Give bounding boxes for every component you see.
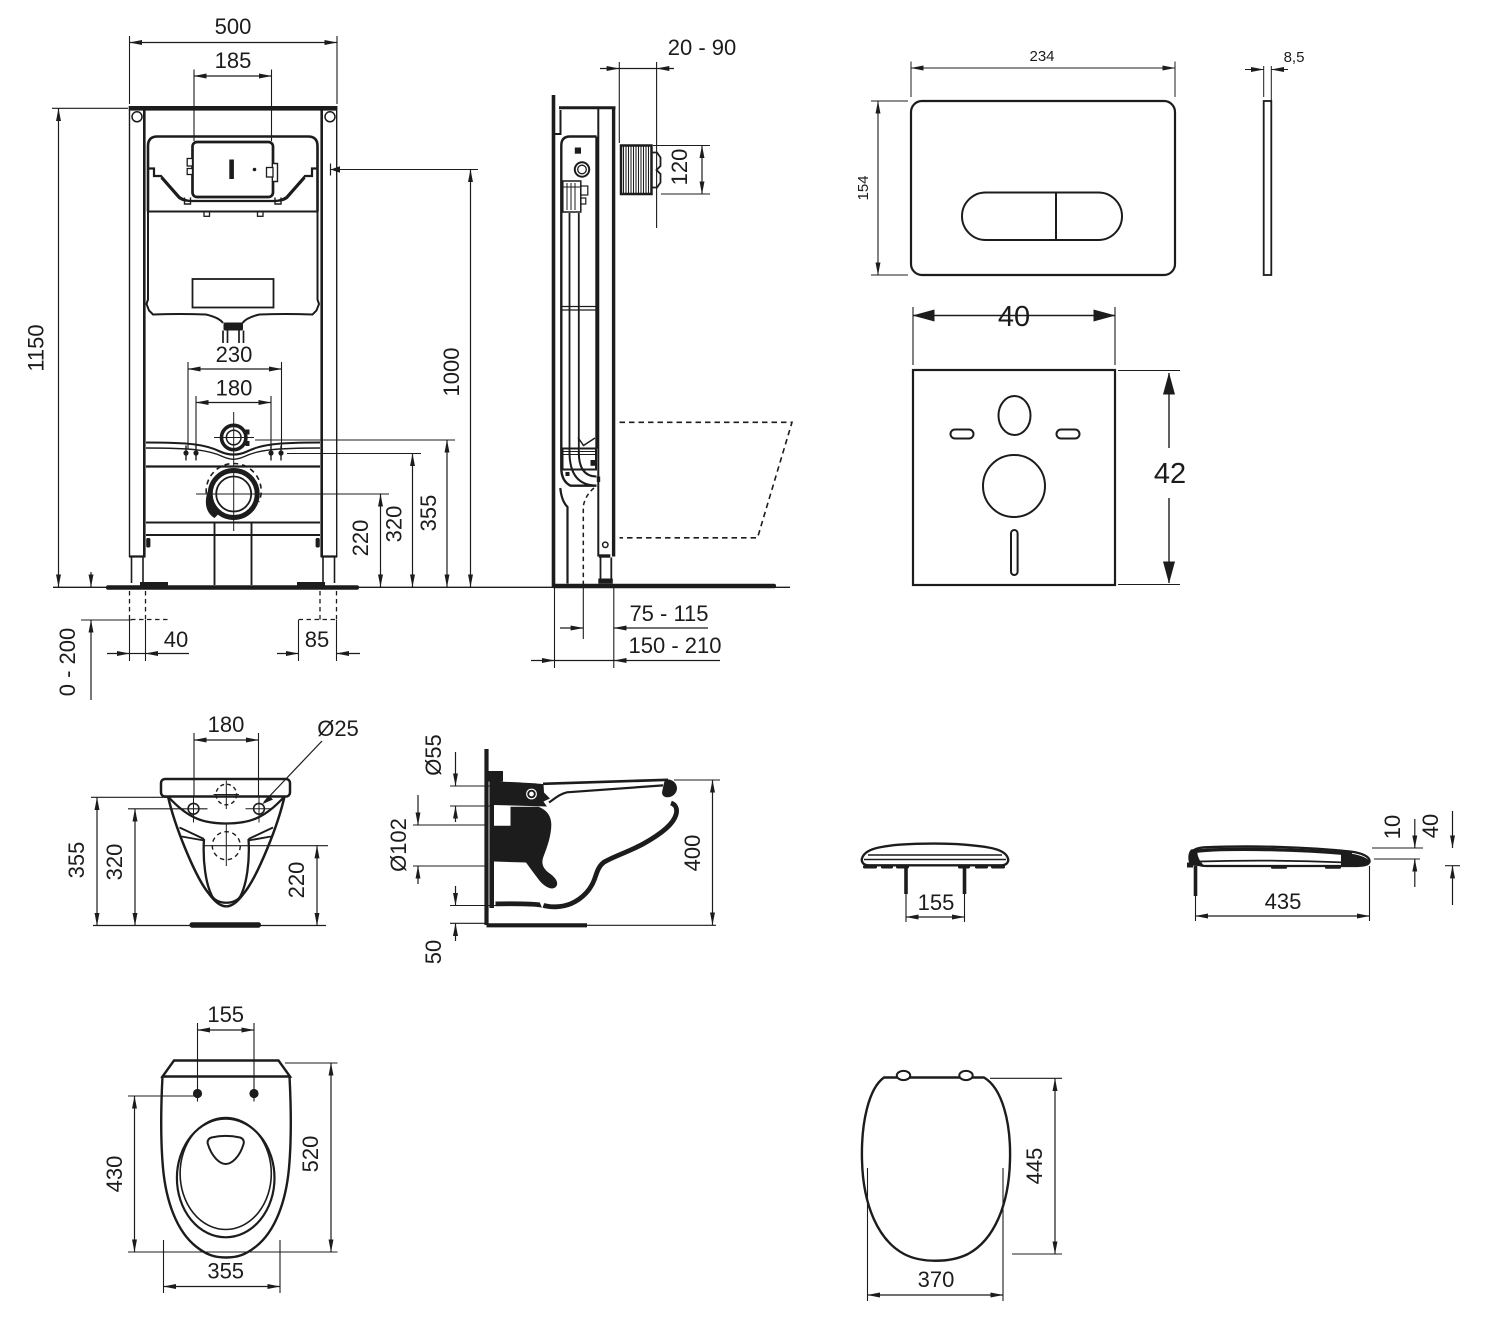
svg-text:320: 320 <box>102 844 127 881</box>
svg-text:355: 355 <box>416 495 441 532</box>
svg-text:370: 370 <box>918 1267 955 1292</box>
svg-text:40: 40 <box>1418 814 1443 838</box>
svg-text:155: 155 <box>918 890 955 915</box>
svg-text:154: 154 <box>855 175 872 200</box>
svg-text:445: 445 <box>1022 1148 1047 1185</box>
svg-text:40: 40 <box>164 627 188 652</box>
svg-text:75 - 115: 75 - 115 <box>629 601 708 626</box>
svg-text:435: 435 <box>1265 889 1302 914</box>
svg-text:0 - 200: 0 - 200 <box>55 628 80 697</box>
svg-text:180: 180 <box>216 376 253 401</box>
svg-text:220: 220 <box>284 862 309 899</box>
svg-text:1150: 1150 <box>24 324 49 371</box>
svg-text:185: 185 <box>215 48 252 73</box>
svg-text:400: 400 <box>680 835 705 872</box>
svg-text:355: 355 <box>64 842 89 879</box>
svg-text:Ø55: Ø55 <box>421 734 446 776</box>
svg-text:500: 500 <box>215 14 252 39</box>
svg-text:50: 50 <box>421 940 446 964</box>
svg-text:40: 40 <box>998 301 1030 333</box>
svg-text:430: 430 <box>102 1156 127 1193</box>
svg-text:8,5: 8,5 <box>1284 49 1305 66</box>
svg-text:Ø102: Ø102 <box>386 818 411 872</box>
svg-text:10: 10 <box>1380 815 1405 839</box>
svg-text:85: 85 <box>305 627 329 652</box>
svg-text:42: 42 <box>1154 458 1186 490</box>
svg-text:355: 355 <box>207 1259 244 1284</box>
svg-text:150 - 210: 150 - 210 <box>629 633 722 658</box>
svg-text:180: 180 <box>208 712 245 737</box>
svg-text:220: 220 <box>348 520 373 557</box>
svg-text:320: 320 <box>382 506 407 543</box>
svg-text:230: 230 <box>216 342 253 367</box>
svg-text:155: 155 <box>207 1002 244 1027</box>
svg-text:20 - 90: 20 - 90 <box>668 35 737 60</box>
svg-text:120: 120 <box>667 149 692 186</box>
svg-text:234: 234 <box>1029 48 1054 65</box>
svg-text:1000: 1000 <box>439 348 464 397</box>
svg-text:Ø25: Ø25 <box>317 716 359 741</box>
svg-text:520: 520 <box>298 1136 323 1173</box>
